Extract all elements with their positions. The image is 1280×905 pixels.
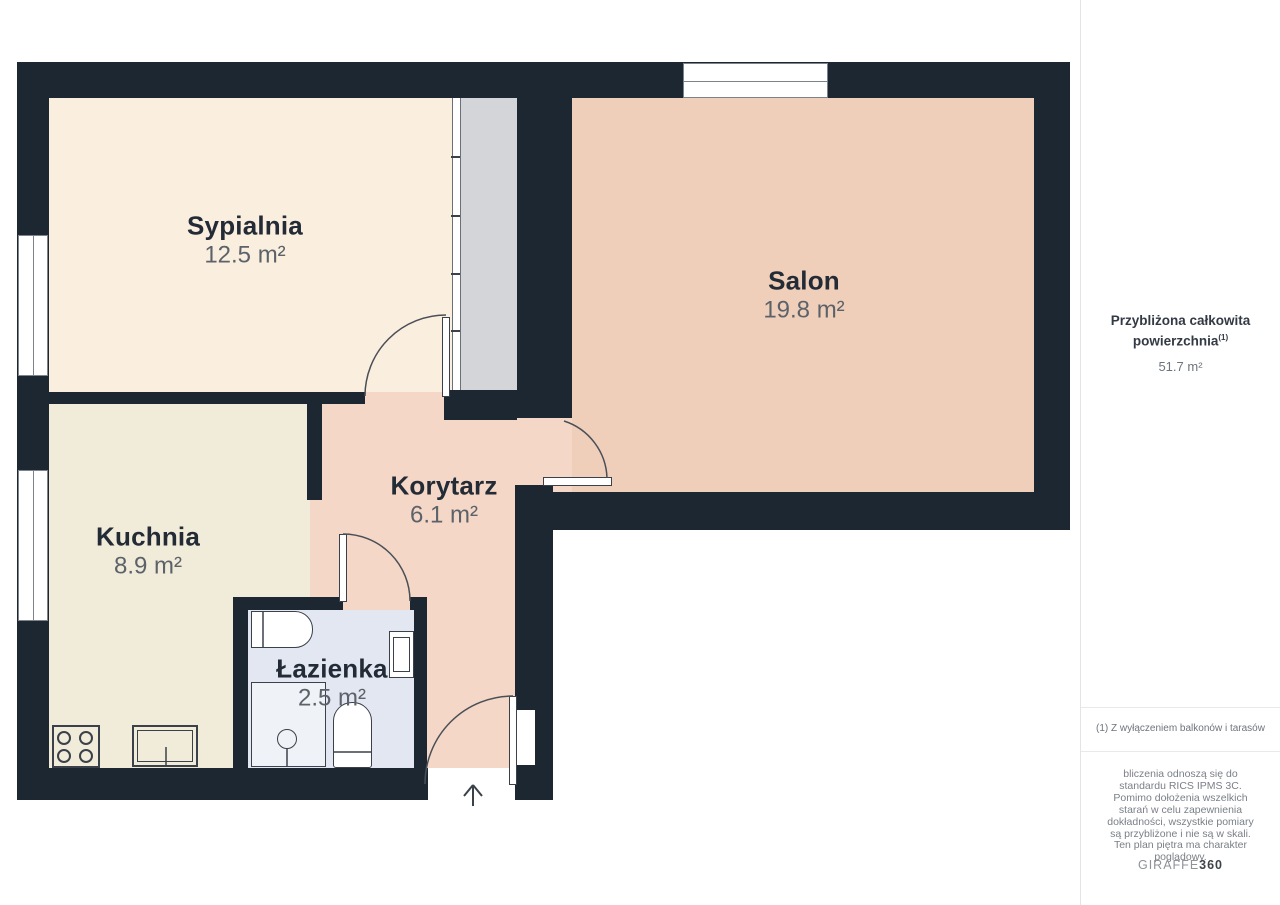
- window-mullion: [684, 81, 827, 82]
- wall-right: [1034, 62, 1070, 530]
- footnote-marker: (1): [1218, 333, 1228, 342]
- wall-bedroom-kitchen: [49, 392, 365, 404]
- room-area: 19.8 m²: [763, 297, 844, 325]
- entrance-door-leaf: [509, 696, 517, 785]
- room-name: Korytarz: [390, 471, 497, 502]
- room-name: Sypialnia: [187, 211, 303, 242]
- room-label-hallway: Korytarz 6.1 m²: [390, 471, 497, 530]
- bathroom-sink-basin-icon: [393, 637, 410, 672]
- bedroom-window: [18, 235, 48, 376]
- floorplan-page: Sypialnia 12.5 m² Salon 19.8 m² Kuchnia …: [0, 0, 1280, 905]
- bedroom-door-leaf: [442, 317, 450, 397]
- total-area-label-line1: Przybliżona całkowita: [1111, 313, 1251, 328]
- wall-top: [17, 62, 1070, 98]
- salon-door-leaf: [543, 477, 612, 486]
- total-area-label-line2: powierzchnia: [1133, 334, 1219, 349]
- wall-wardrobe-salon: [517, 98, 572, 418]
- divider: [1081, 751, 1280, 752]
- window-mullion: [33, 236, 34, 375]
- stove-burner-icon: [57, 749, 71, 763]
- divider: [1081, 707, 1280, 708]
- room-area: 2.5 m²: [276, 685, 387, 713]
- total-area-value: 51.7 m²: [1081, 359, 1280, 374]
- wall-bottom: [17, 768, 428, 800]
- disclaimer-text: bliczenia odnoszą się do standardu RICS …: [1102, 769, 1259, 864]
- bathtub-icon: [251, 611, 313, 648]
- wardrobe-track-tick: [451, 215, 460, 217]
- total-area-label: Przybliżona całkowita powierzchnia(1): [1081, 312, 1280, 350]
- wall-bath-top-right: [410, 597, 427, 610]
- wall-bath-right: [414, 610, 427, 768]
- bathroom-door-leaf: [339, 534, 347, 602]
- kitchen-window: [18, 470, 48, 621]
- room-area: 8.9 m²: [96, 553, 200, 581]
- room-label-bathroom: Łazienka 2.5 m²: [276, 654, 387, 713]
- logo-text-primary: GIRAFFE: [1138, 858, 1199, 872]
- room-name: Salon: [763, 266, 844, 297]
- stove-burner-icon: [79, 731, 93, 745]
- wall-bath-top-left: [233, 597, 343, 610]
- wardrobe-track-tick: [451, 273, 460, 275]
- room-area: 6.1 m²: [390, 502, 497, 530]
- giraffe360-logo: GIRAFFE360: [1081, 858, 1280, 872]
- kitchen-sink-basin-icon: [137, 730, 193, 762]
- wall-bedroom-door-jamb: [444, 390, 517, 420]
- wall-bath-left: [233, 597, 248, 768]
- wardrobe-door-track: [452, 98, 461, 390]
- entrance-arrow-icon: [464, 785, 482, 806]
- wall-left: [17, 62, 49, 800]
- room-name: Kuchnia: [96, 522, 200, 553]
- balcony-door-window: [683, 63, 828, 98]
- wall-niche: [517, 710, 535, 765]
- wardrobe-block: [459, 98, 517, 390]
- info-sidebar: Przybliżona całkowita powierzchnia(1) 51…: [1080, 0, 1280, 905]
- window-mullion: [33, 471, 34, 620]
- room-area: 12.5 m²: [187, 242, 303, 270]
- footnote-text: (1) Z wyłączeniem balkonów i tarasów: [1087, 723, 1274, 734]
- room-name: Łazienka: [276, 654, 387, 685]
- wardrobe-track-tick: [451, 156, 460, 158]
- wall-kitchen-hall-stub: [307, 404, 322, 500]
- room-label-livingroom: Salon 19.8 m²: [763, 266, 844, 325]
- logo-text-secondary: 360: [1199, 858, 1223, 872]
- shower-drain-icon: [277, 729, 297, 749]
- room-label-bedroom: Sypialnia 12.5 m²: [187, 211, 303, 270]
- stove-burner-icon: [57, 731, 71, 745]
- wall-salon-bottom: [553, 492, 1070, 530]
- stove-burner-icon: [79, 749, 93, 763]
- wardrobe-track-tick: [451, 330, 460, 332]
- room-label-kitchen: Kuchnia 8.9 m²: [96, 522, 200, 581]
